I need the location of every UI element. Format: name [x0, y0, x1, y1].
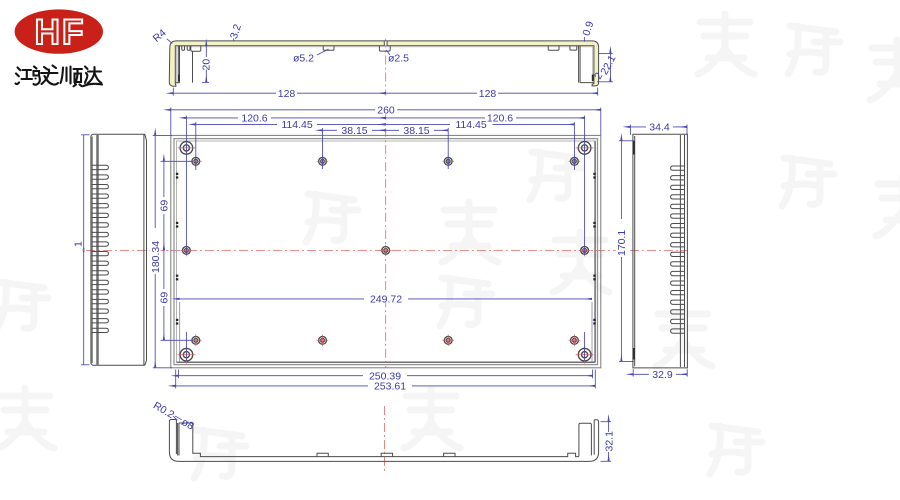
svg-text:128: 128: [278, 88, 296, 100]
svg-text:20: 20: [201, 59, 213, 71]
svg-text:ø5.2: ø5.2: [293, 53, 314, 65]
svg-text:249.72: 249.72: [370, 293, 402, 305]
svg-text:260: 260: [377, 105, 395, 117]
svg-text:69: 69: [159, 292, 171, 304]
svg-text:180.34: 180.34: [150, 241, 162, 273]
svg-text:120.6: 120.6: [487, 113, 513, 125]
svg-text:34.4: 34.4: [649, 122, 670, 134]
svg-text:253.61: 253.61: [374, 381, 406, 393]
svg-text:170.1: 170.1: [616, 230, 628, 256]
svg-text:114.45: 114.45: [455, 119, 486, 131]
svg-text:69: 69: [159, 200, 171, 212]
svg-text:38.15: 38.15: [403, 125, 429, 137]
svg-text:32.1: 32.1: [603, 431, 615, 452]
svg-text:32.9: 32.9: [652, 369, 673, 381]
svg-text:128: 128: [479, 88, 497, 100]
svg-text:114.45: 114.45: [281, 119, 312, 131]
svg-text:38.15: 38.15: [341, 125, 367, 137]
svg-text:1: 1: [73, 241, 85, 247]
svg-text:HF: HF: [35, 13, 86, 52]
svg-text:120.6: 120.6: [241, 113, 267, 125]
svg-text:™: ™: [70, 15, 76, 22]
svg-text:ø2.5: ø2.5: [388, 53, 409, 65]
